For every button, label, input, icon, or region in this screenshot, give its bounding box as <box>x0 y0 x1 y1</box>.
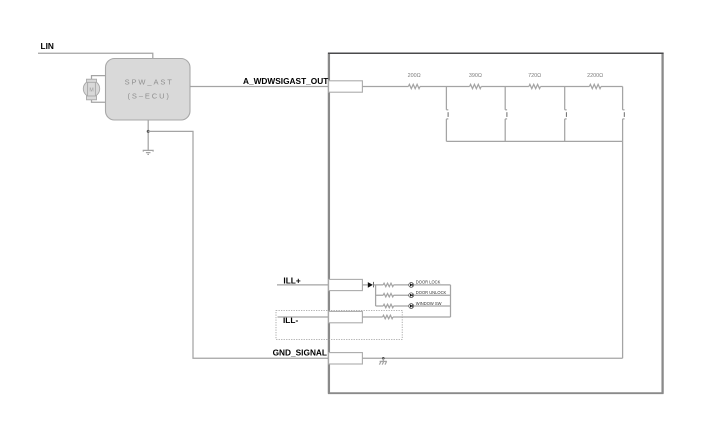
svg-text:GND_SIGNAL: GND_SIGNAL <box>273 348 327 358</box>
svg-text:WINDOW SW: WINDOW SW <box>416 301 442 306</box>
svg-text:390Ω: 390Ω <box>469 73 482 79</box>
svg-text:DOOR UNLOCK: DOOR UNLOCK <box>416 290 447 295</box>
svg-text:2200Ω: 2200Ω <box>587 73 603 79</box>
svg-text:A_WDWSIGAST_OUT: A_WDWSIGAST_OUT <box>243 76 328 86</box>
svg-text:720Ω: 720Ω <box>528 73 541 79</box>
svg-text:ILL+: ILL+ <box>283 275 300 285</box>
svg-text:200Ω: 200Ω <box>408 73 421 79</box>
svg-text:(S–ECU): (S–ECU) <box>128 91 171 100</box>
svg-text:LIN: LIN <box>41 41 54 51</box>
svg-text:SPW_AST: SPW_AST <box>125 77 174 86</box>
svg-text:M: M <box>89 87 93 93</box>
svg-text:DOOR LOCK: DOOR LOCK <box>416 280 441 285</box>
